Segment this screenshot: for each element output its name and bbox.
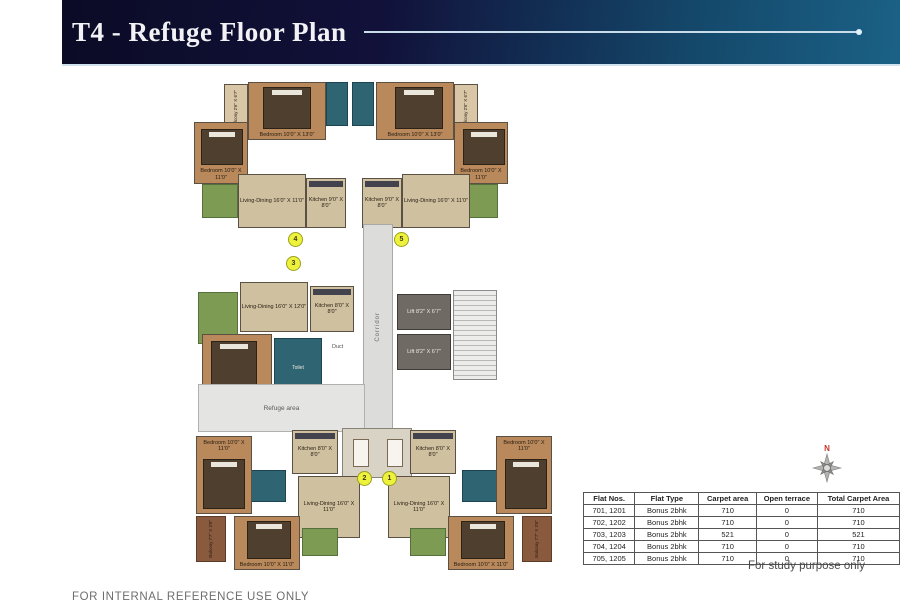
table-cell: 704, 1204 [584, 541, 635, 553]
table-cell: 0 [756, 541, 817, 553]
room-label: Living-Dining 16'0" X 11'0" [389, 501, 449, 514]
room-label: Bedroom 10'0" X 13'0" [249, 132, 325, 138]
room-bathroom [462, 470, 498, 502]
room-label: Bedroom 10'0" X 11'0" [197, 440, 251, 453]
unit-marker: 2 [357, 471, 372, 486]
room-living-dining: Living-Dining 16'0" X 11'0" [238, 174, 306, 228]
table-cell: 710 [699, 505, 756, 517]
balcony-garden [302, 528, 338, 556]
table-cell: 702, 1202 [584, 517, 635, 529]
floor-plan: Balcony 2'6" X 6'7" Bedroom 10'0" X 13'0… [190, 76, 558, 576]
table-cell: 705, 1205 [584, 553, 635, 565]
table-cell: Bonus 2bhk [635, 541, 699, 553]
room-living-dining: Living-Dining 16'0" X 12'0" [240, 282, 308, 332]
room-label: Kitchen 8'0" X 8'0" [293, 446, 337, 459]
table-cell: 703, 1203 [584, 529, 635, 541]
bed-icon [505, 459, 547, 509]
room-kitchen: Kitchen 9'0" X 8'0" [306, 178, 346, 228]
unit-marker: 1 [382, 471, 397, 486]
bed-icon [461, 521, 505, 559]
table-cell: Bonus 2bhk [635, 517, 699, 529]
room-label: Living-Dining 16'0" X 11'0" [404, 198, 468, 204]
room-label: Living-Dining 16'0" X 11'0" [240, 198, 304, 204]
table-cell: Bonus 2bhk [635, 553, 699, 565]
table-cell: 710 [699, 517, 756, 529]
bed-icon [247, 521, 291, 559]
table-row: 704, 1204 Bonus 2bhk 710 0 710 [584, 541, 900, 553]
duct-label: Duct [332, 344, 362, 350]
table-cell: 710 [817, 541, 899, 553]
table-cell: 521 [699, 529, 756, 541]
balcony-label: Balcony 7'7" X 3'6" [534, 520, 539, 558]
bed-icon [395, 87, 443, 129]
lift: Lift 8'2" X 6'7" [397, 334, 451, 370]
balcony: Balcony 7'7" X 3'6" [196, 516, 226, 562]
table-cell: 0 [756, 505, 817, 517]
balcony-garden [202, 184, 238, 218]
table-cell: Bonus 2bhk [635, 505, 699, 517]
room-bedroom: Bedroom 10'0" X 13'0" [248, 82, 326, 140]
room-label: Bedroom 10'0" X 11'0" [449, 562, 513, 568]
room-label: Toilet [292, 366, 304, 372]
room-label: Bedroom 10'0" X 11'0" [497, 440, 551, 453]
balcony-label: Balcony 7'7" X 3'6" [208, 520, 213, 558]
compass: N [810, 445, 844, 488]
page-title: T4 - Refuge Floor Plan [72, 17, 346, 48]
area-table: Flat Nos. Flat Type Carpet area Open ter… [583, 492, 900, 565]
room-bedroom: Bedroom 10'0" X 11'0" [496, 436, 552, 514]
title-rule [364, 31, 860, 33]
lift: Lift 8'2" X 6'7" [397, 294, 451, 330]
room-kitchen: Kitchen 9'0" X 8'0" [362, 178, 402, 228]
unit-marker: 5 [394, 232, 409, 247]
table-cell: Bonus 2bhk [635, 529, 699, 541]
table-row: 702, 1202 Bonus 2bhk 710 0 710 [584, 517, 900, 529]
refuge-area: Refuge area [198, 384, 365, 432]
table-cell: 710 [699, 541, 756, 553]
lift-label: Lift 8'2" X 6'7" [407, 349, 441, 355]
table-header-row: Flat Nos. Flat Type Carpet area Open ter… [584, 493, 900, 505]
room-kitchen: Kitchen 8'0" X 8'0" [310, 286, 354, 332]
unit-marker-label: 3 [292, 260, 296, 267]
unit-marker: 3 [286, 256, 301, 271]
bed-icon [211, 341, 257, 385]
table-cell: 710 [817, 517, 899, 529]
room-bathroom [250, 470, 286, 502]
table-header: Flat Type [635, 493, 699, 505]
unit-marker: 4 [288, 232, 303, 247]
lift-label: Lift 8'2" X 6'7" [407, 309, 441, 315]
entrance-lobby [342, 428, 412, 478]
internal-note: FOR INTERNAL REFERENCE USE ONLY [72, 591, 309, 603]
room-bathroom [352, 82, 374, 126]
unit-marker-label: 4 [294, 236, 298, 243]
corridor-label: Corridor [375, 312, 382, 342]
table-row: 703, 1203 Bonus 2bhk 521 0 521 [584, 529, 900, 541]
room-label: Living-Dining 16'0" X 12'0" [242, 304, 306, 310]
room-bedroom: Bedroom 10'0" X 13'0" [376, 82, 454, 140]
door-icon [387, 439, 403, 467]
table-cell: 0 [756, 529, 817, 541]
bed-icon [463, 129, 505, 165]
room-bedroom: Bedroom 10'0" X 11'0" [234, 516, 300, 570]
table-header: Carpet area [699, 493, 756, 505]
balcony-garden [410, 528, 446, 556]
room-label: Bedroom 10'0" X 11'0" [235, 562, 299, 568]
room-label: Kitchen 8'0" X 8'0" [311, 303, 353, 316]
corridor: Corridor [363, 224, 393, 430]
room-bedroom: Bedroom 10'0" X 11'0" [448, 516, 514, 570]
table-header: Total Carpet Area [817, 493, 899, 505]
unit-marker-label: 5 [400, 236, 404, 243]
bed-icon [263, 87, 311, 129]
balcony: Balcony 7'7" X 3'6" [522, 516, 552, 562]
unit-marker-label: 2 [363, 475, 367, 482]
table-cell: 701, 1201 [584, 505, 635, 517]
door-icon [353, 439, 369, 467]
room-kitchen: Kitchen 8'0" X 8'0" [410, 430, 456, 474]
bed-icon [201, 129, 243, 165]
room-label: Kitchen 9'0" X 8'0" [363, 197, 401, 210]
compass-icon [812, 453, 842, 483]
table-cell: 0 [756, 517, 817, 529]
room-label: Kitchen 9'0" X 8'0" [307, 197, 345, 210]
room-label: Living-Dining 16'0" X 11'0" [299, 501, 359, 514]
unit-marker-label: 1 [388, 475, 392, 482]
room-bathroom [326, 82, 348, 126]
table-cell: 521 [817, 529, 899, 541]
table-header: Flat Nos. [584, 493, 635, 505]
table-row: 701, 1201 Bonus 2bhk 710 0 710 [584, 505, 900, 517]
room-kitchen: Kitchen 8'0" X 8'0" [292, 430, 338, 474]
bed-icon [203, 459, 245, 509]
staircase [453, 290, 497, 380]
title-bar: T4 - Refuge Floor Plan [62, 0, 900, 66]
room-label: Kitchen 8'0" X 8'0" [411, 446, 455, 459]
room-bedroom: Bedroom 10'0" X 11'0" [196, 436, 252, 514]
north-label: N [810, 445, 844, 453]
refuge-label: Refuge area [264, 405, 300, 412]
study-note: For study purpose only [748, 560, 865, 572]
table-cell: 710 [817, 505, 899, 517]
room-living-dining: Living-Dining 16'0" X 11'0" [402, 174, 470, 228]
room-label: Bedroom 10'0" X 13'0" [377, 132, 453, 138]
page: T4 - Refuge Floor Plan Balcony 2'6" X 6'… [0, 0, 900, 610]
table-header: Open terrace [756, 493, 817, 505]
